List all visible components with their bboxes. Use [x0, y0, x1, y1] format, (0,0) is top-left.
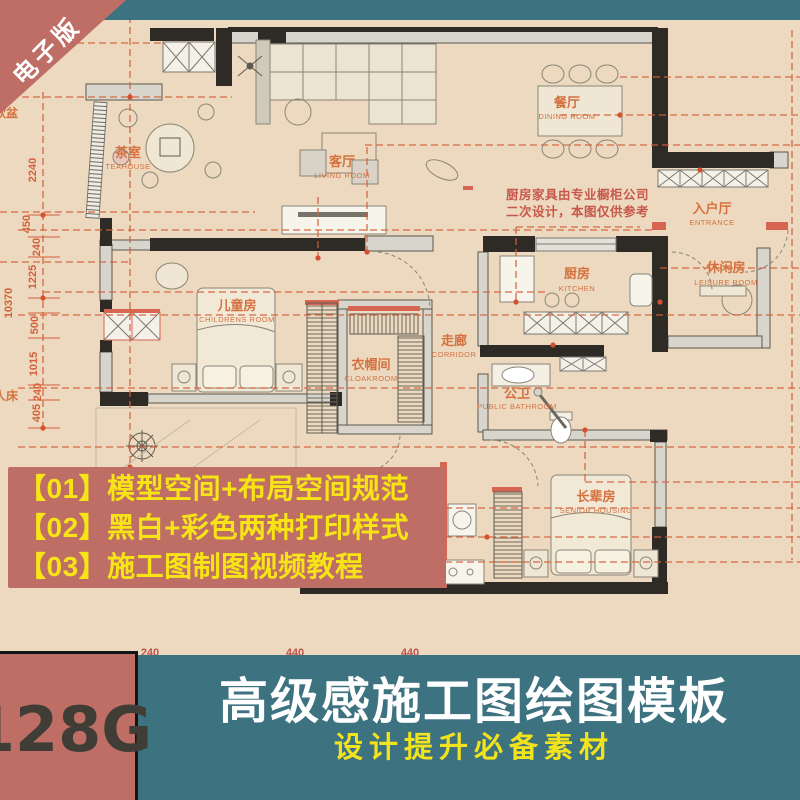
dim-450: 450 — [21, 215, 33, 233]
room-label-entrance-en: ENTRANCE — [689, 218, 734, 227]
kitchen-note: 厨房家具由专业橱柜公司 二次设计，本图仅供参考 — [506, 187, 649, 219]
room-label-dining-cn: 餐厅 — [553, 95, 580, 110]
room-label-cloak-cn: 衣帽间 — [351, 357, 390, 372]
capacity-badge: 128G — [0, 651, 138, 800]
promo-line-1: 【01】模型空间+布局空间规范 — [18, 469, 446, 508]
room-label-dining-en: DINING ROOM — [538, 112, 595, 121]
promo-line-3: 【03】施工图制图视频教程 — [18, 547, 446, 586]
room-label-leisure-en: LEISURE ROOM — [694, 278, 758, 287]
room-label-teahouse-cn: 茶室 — [115, 145, 141, 160]
room-label-senior-cn: 长辈房 — [576, 489, 615, 504]
promo-line-2: 【02】黑白+彩色两种打印样式 — [18, 508, 446, 547]
children-bed — [156, 263, 302, 392]
kitchen-fixtures — [500, 256, 652, 307]
room-label-corridor-en: CORRIDOR — [432, 350, 477, 359]
room-label-living-en: LIVING ROOM — [314, 171, 370, 180]
edge-label-bottom: 人床 — [0, 388, 19, 403]
entrance-window — [658, 170, 768, 187]
dim-2240: 2240 — [27, 158, 39, 182]
dim-240a: 240 — [31, 238, 43, 256]
dim-10370: 10370 — [3, 288, 15, 319]
leisure-furniture — [700, 285, 752, 315]
laundry — [442, 504, 484, 584]
kitchen-note-line2: 二次设计，本图仅供参考 — [506, 204, 649, 219]
room-label-children-en: CHILDRENS ROOM — [199, 315, 275, 324]
room-label-senior-en: SENIOR HOUSING — [560, 506, 633, 515]
dim-240b: 240 — [32, 383, 44, 401]
room-label-cloak-en: CLOAKROOM — [344, 374, 397, 383]
room-label-kitchen-en: KITCHEN — [559, 284, 595, 293]
dim-405: 405 — [31, 404, 43, 422]
dim-500: 500 — [29, 316, 41, 334]
room-label-teahouse-en: TEAHOUSE — [105, 162, 150, 171]
room-label-leisure-cn: 休闲房 — [705, 260, 745, 275]
room-label-kitchen-cn: 厨房 — [564, 266, 590, 281]
faint-room — [96, 408, 296, 470]
kitchen-note-line1: 厨房家具由专业橱柜公司 — [506, 187, 649, 202]
wall-sills — [86, 31, 788, 527]
room-label-bath-en: PUBLIC BATHROOM — [477, 402, 556, 411]
product-image: 茶室 TEAHOUSE 客厅 LIVING ROOM 餐厅 DINING ROO… — [0, 0, 800, 800]
children-window — [104, 312, 160, 340]
room-label-living-cn: 客厅 — [329, 154, 355, 169]
edge-labels: 软盆 人床 — [0, 105, 19, 403]
wardrobe-rail — [307, 303, 337, 433]
footer-title: 高级感施工图绘图模板 — [148, 662, 800, 733]
bath-shelf — [560, 357, 606, 371]
teahouse-side-window — [86, 102, 107, 219]
room-label-children-cn: 儿童房 — [216, 298, 256, 313]
sofa — [256, 40, 436, 125]
dimension-texts: 2240 450 240 1225 10370 500 1015 240 405 — [3, 158, 44, 422]
room-label-bath-cn: 公卫 — [504, 386, 530, 401]
footer-band: 128G 高级感施工图绘图模板 设计提升必备素材 — [0, 655, 800, 800]
dim-1225: 1225 — [27, 265, 39, 289]
room-label-entrance-cn: 入户厅 — [692, 201, 731, 216]
teahouse-window — [163, 42, 215, 72]
dim-1015: 1015 — [28, 352, 40, 376]
footer-subtitle: 设计提升必备素材 — [148, 724, 800, 766]
promo-block: 【01】模型空间+布局空间规范 【02】黑白+彩色两种打印样式 【03】施工图制… — [8, 467, 446, 588]
room-label-corridor-cn: 走廊 — [441, 333, 467, 348]
